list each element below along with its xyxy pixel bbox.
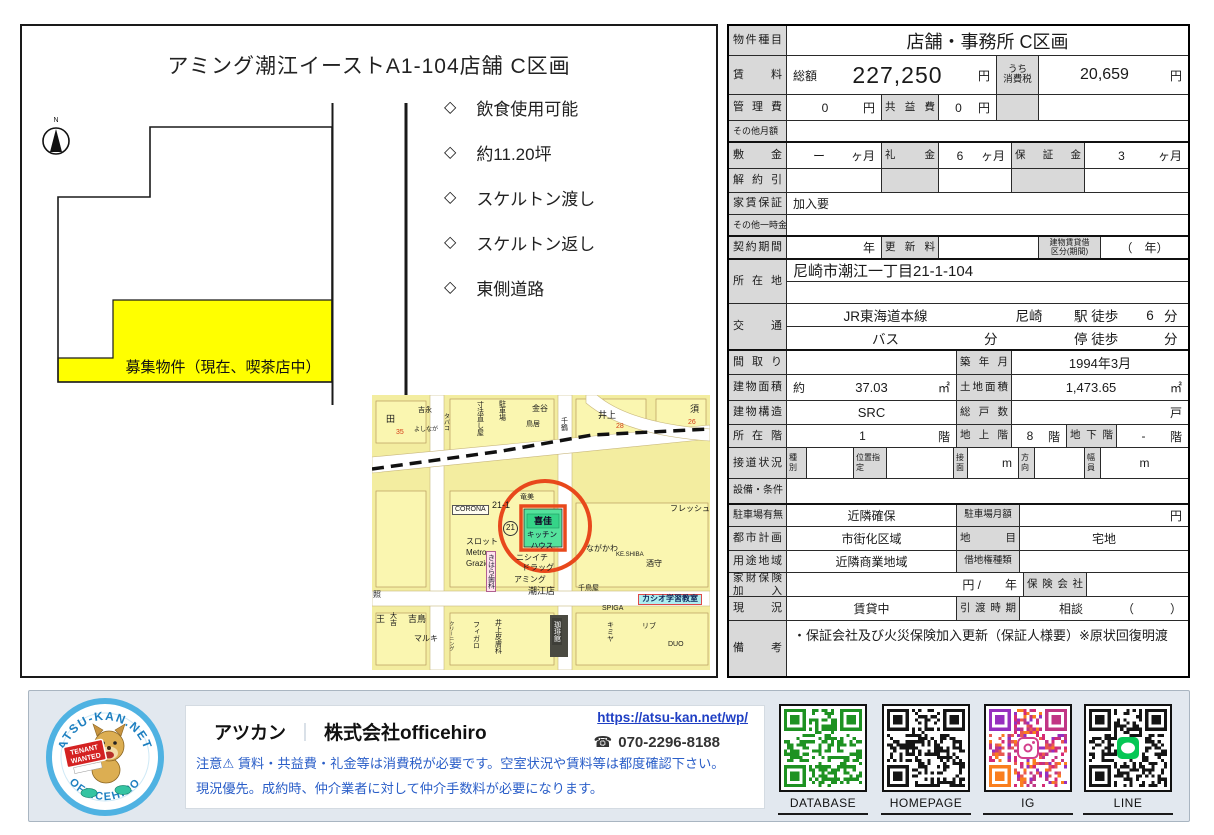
- row-remarks: 備考 ・保証会社及び火災保険加入更新（保証人様要）※原状回復明渡: [729, 620, 1188, 676]
- row-address: 所在地 尼崎市潮江一丁目21-1-104: [729, 258, 1188, 303]
- notice-line-1: 注意⚠ 賃料・共益費・礼金等は消費税が必要です。空室状況や賃料等は都度確認下さい…: [196, 753, 724, 772]
- row-other-onetime: その他一時金: [729, 214, 1188, 235]
- remarks-value: ・保証会社及び火災保険加入更新（保証人様要）※原状回復明渡: [793, 625, 1168, 644]
- map-label: マルキ: [414, 635, 438, 644]
- footer-band: ATSU-KAN.NET OFFICEHIRO TENANT WANTED アツ…: [28, 690, 1190, 822]
- map-label: フィガロ: [472, 621, 480, 649]
- rent-amount: 227,250: [817, 62, 978, 89]
- map-label: 21: [503, 521, 518, 536]
- row-zoning: 用途地域 近隣商業地域 借地権種類: [729, 550, 1188, 572]
- qr-code-database: [784, 709, 862, 787]
- map-label: CORONA: [452, 505, 489, 515]
- status-value: 賃貸中: [787, 600, 956, 617]
- map-road-vertical-west: [430, 395, 444, 670]
- phone-line: ☎070-2296-8188: [594, 733, 720, 751]
- row-contract-period: 契約期間 年 更新料 建物賃貸借区分(期間) （ 年）: [729, 235, 1188, 258]
- row-structure: 建物構造 SRC 総戸数 戸: [729, 400, 1188, 424]
- map-label: 吉永: [418, 407, 432, 415]
- instagram-icon: [1017, 737, 1039, 759]
- property-flyer: { "plan": { "title": "アミング潮江イーストA1-104店舗…: [0, 0, 1214, 835]
- property-detail-table: 物件種目 店舗・事務所 C区画 賃料 総額 227,250 円 うち消費税 20…: [727, 24, 1190, 678]
- map-label: ニシイチ: [516, 554, 548, 563]
- target-tenant-name: キッチンハウス: [524, 529, 560, 551]
- map-label: 鳥居: [526, 421, 540, 429]
- map-label: 珈琲館: [552, 618, 562, 645]
- company-logo: ATSU-KAN.NET OFFICEHIRO TENANT WANTED: [45, 696, 165, 818]
- map-label: 駐車場: [498, 400, 506, 421]
- map-label: きはら歯科: [486, 551, 496, 592]
- row-rent-guarantee: 家賃保証 加入要: [729, 192, 1188, 214]
- map-label: 照: [373, 591, 381, 600]
- row-facilities: 設備・条件: [729, 478, 1188, 503]
- zoning-value: 近隣商業地域: [787, 553, 956, 570]
- map-label: KE.SHIBA: [616, 552, 644, 558]
- map-label: リブ: [642, 623, 656, 631]
- row-property-type: 物件種目 店舗・事務所 C区画: [729, 26, 1188, 55]
- map-label: タバコ: [442, 413, 448, 431]
- parking-value: 近隣確保: [787, 507, 956, 524]
- rent-total-label: 総額: [787, 67, 817, 84]
- map-label: 35: [396, 429, 404, 437]
- map-label: キミヤ: [606, 621, 614, 642]
- brand-name: アツカン: [214, 719, 286, 745]
- qr-item-homepage: HOMEPAGE: [881, 704, 971, 815]
- feature-bullet-label: 東側道路: [476, 275, 544, 300]
- walk-minutes: 6: [1136, 308, 1164, 323]
- floors-above: 8: [1012, 429, 1048, 443]
- map-label: ながかわ: [586, 545, 618, 554]
- qr-box: [779, 704, 867, 792]
- map-label: アミング: [514, 576, 546, 585]
- feature-bullet-item: ◇飲食使用可能: [444, 94, 595, 120]
- qr-item-database: DATABASE: [778, 704, 868, 815]
- map-label: 須: [690, 405, 699, 415]
- row-cancellation-deduction: 解約引: [729, 168, 1188, 192]
- guarantee-value: 加入要: [787, 195, 829, 212]
- qr-box: [1084, 704, 1172, 792]
- floor-plan-panel: アミング潮江イーストA1-104店舗 C区画 N 募集物件（現在、喫茶店中） ◇…: [20, 24, 718, 678]
- map-label: クリーニング: [448, 621, 453, 651]
- map-label: 千鶴: [560, 417, 568, 431]
- map-label: Metro: [466, 549, 486, 558]
- map-label: 井上皮膚科: [494, 619, 502, 654]
- label-cell: 物件種目: [729, 26, 787, 55]
- station-name: 尼崎: [984, 305, 1074, 325]
- city-planning-value: 市街化区域: [787, 530, 956, 547]
- map-label: DUO: [668, 641, 684, 649]
- row-building-area: 建物面積 約37.03㎡ 土地面積 1,473.65㎡: [729, 374, 1188, 400]
- line-icon: [1117, 737, 1139, 759]
- address-value: 尼崎市潮江一丁目21-1-104: [787, 260, 973, 281]
- row-rent: 賃料 総額 227,250 円 うち消費税 20,659 円: [729, 55, 1188, 94]
- area-map: 田吉永よしなが35タバコ寸法直し屋駐車場金谷鳥居千鶴井上28須26CORONA2…: [372, 395, 710, 670]
- company-line: アツカン ｜ 株式会社officehiro: [214, 718, 487, 745]
- map-label: 大吉: [389, 612, 397, 626]
- map-label: 竜美: [520, 494, 534, 502]
- qr-label: LINE: [1083, 796, 1173, 810]
- row-insurance: 家財保険加入 円 /年 保険会社: [729, 572, 1188, 596]
- row-floor: 所在階 1階 地上階 8階 地下階 -階: [729, 424, 1188, 447]
- website-link[interactable]: https://atsu-kan.net/wp/: [597, 710, 748, 725]
- qr-item-ig: IG: [983, 704, 1073, 815]
- map-label: フレッシュ: [670, 505, 710, 514]
- row-other-monthly: その他月額: [729, 120, 1188, 141]
- map-label: カシオ学習教室: [638, 594, 702, 605]
- feature-bullet-label: 飲食使用可能: [476, 95, 578, 120]
- feature-bullet-label: スケルトン返し: [476, 230, 595, 255]
- qr-item-line: LINE: [1083, 704, 1173, 815]
- map-label: 21-1: [492, 501, 510, 511]
- feature-bullet-item: ◇東側道路: [444, 274, 595, 300]
- feature-bullet-item: ◇スケルトン渡し: [444, 184, 595, 210]
- map-label: 28: [616, 423, 624, 431]
- row-parking: 駐車場有無 近隣確保 駐車場月額 円: [729, 503, 1188, 526]
- map-label: SPIGA: [602, 605, 623, 613]
- row-layout-built: 間取り 築年月 1994年3月: [729, 349, 1188, 374]
- handover-value: 相談: [1020, 600, 1122, 617]
- built-date: 1994年3月: [1012, 353, 1188, 372]
- qr-code-homepage: [887, 709, 965, 787]
- notice-line-2: 現況優先。成約時、仲介業者に対して仲介手数料が必要になります。: [196, 778, 603, 797]
- land-area-value: 1,473.65: [1012, 380, 1170, 395]
- structure-value: SRC: [787, 405, 956, 420]
- row-management-fee: 管理費 0円 共益費 0円: [729, 94, 1188, 120]
- map-label: 26: [688, 419, 696, 427]
- map-label: 寸法直し屋: [476, 401, 484, 436]
- property-type-value: 店舗・事務所 C区画: [787, 28, 1188, 54]
- map-label: 田: [386, 415, 395, 425]
- map-label: スロット: [466, 538, 498, 547]
- map-label: 千鳥屋: [578, 585, 599, 593]
- row-city-planning: 都市計画 市街化区域 地目 宅地: [729, 526, 1188, 550]
- company-info-box: アツカン ｜ 株式会社officehiro https://atsu-kan.n…: [185, 705, 765, 809]
- phone-icon: ☎: [594, 734, 613, 751]
- row-current-status: 現況 賃貸中 引渡時期 相談（ ）: [729, 596, 1188, 620]
- qr-label: DATABASE: [778, 796, 868, 810]
- floor-value: 1: [787, 429, 938, 443]
- brand-separator: ｜: [296, 719, 314, 745]
- target-building-name: 喜佳: [527, 514, 559, 527]
- map-label: 金谷: [532, 405, 548, 414]
- row-access: 交通 JR東海道本線 尼崎 駅 徒歩 6 分 バス 分 停 徒歩 分: [729, 303, 1188, 349]
- feature-bullet-label: 約11.20坪: [476, 140, 551, 165]
- building-area-value: 37.03: [805, 380, 938, 395]
- tax-label: うち消費税: [1000, 65, 1035, 86]
- map-label: よしなが: [414, 427, 438, 433]
- diamond-bullet-icon: ◇: [444, 277, 456, 297]
- map-label: 井上: [598, 411, 616, 421]
- qr-label: HOMEPAGE: [881, 796, 971, 810]
- land-category-value: 宅地: [1020, 530, 1188, 547]
- diamond-bullet-icon: ◇: [444, 97, 456, 117]
- feature-bullet-item: ◇約11.20坪: [444, 139, 595, 165]
- highlight-label: 募集物件（現在、喫茶店中）: [110, 356, 336, 377]
- row-deposit: 敷金 ーヶ月 礼金 6ヶ月 保証金 3ヶ月: [729, 141, 1188, 168]
- rail-line: JR東海道本線: [787, 305, 984, 325]
- qr-box: [984, 704, 1072, 792]
- row-road-condition: 接道状況 種別 位置指定 接面 m 方向 幅員 m: [729, 447, 1188, 478]
- map-label: 潮江店: [528, 587, 555, 597]
- feature-bullet-label: スケルトン渡し: [476, 185, 595, 210]
- tax-amount: 20,659: [1039, 66, 1170, 84]
- map-label: ドラッグ: [522, 564, 554, 573]
- diamond-bullet-icon: ◇: [444, 187, 456, 207]
- qr-box: [882, 704, 970, 792]
- qr-label: IG: [983, 796, 1073, 810]
- map-label: 王: [376, 615, 385, 625]
- company-name: 株式会社officehiro: [324, 718, 487, 745]
- map-label: 吉鳥: [408, 615, 426, 625]
- feature-bullet-item: ◇スケルトン返し: [444, 229, 595, 255]
- diamond-bullet-icon: ◇: [444, 142, 456, 162]
- feature-bullet-list: ◇飲食使用可能◇約11.20坪◇スケルトン渡し◇スケルトン返し◇東側道路: [444, 94, 595, 300]
- diamond-bullet-icon: ◇: [444, 232, 456, 252]
- map-label: 酒守: [646, 560, 662, 569]
- phone-number: 070-2296-8188: [618, 734, 720, 751]
